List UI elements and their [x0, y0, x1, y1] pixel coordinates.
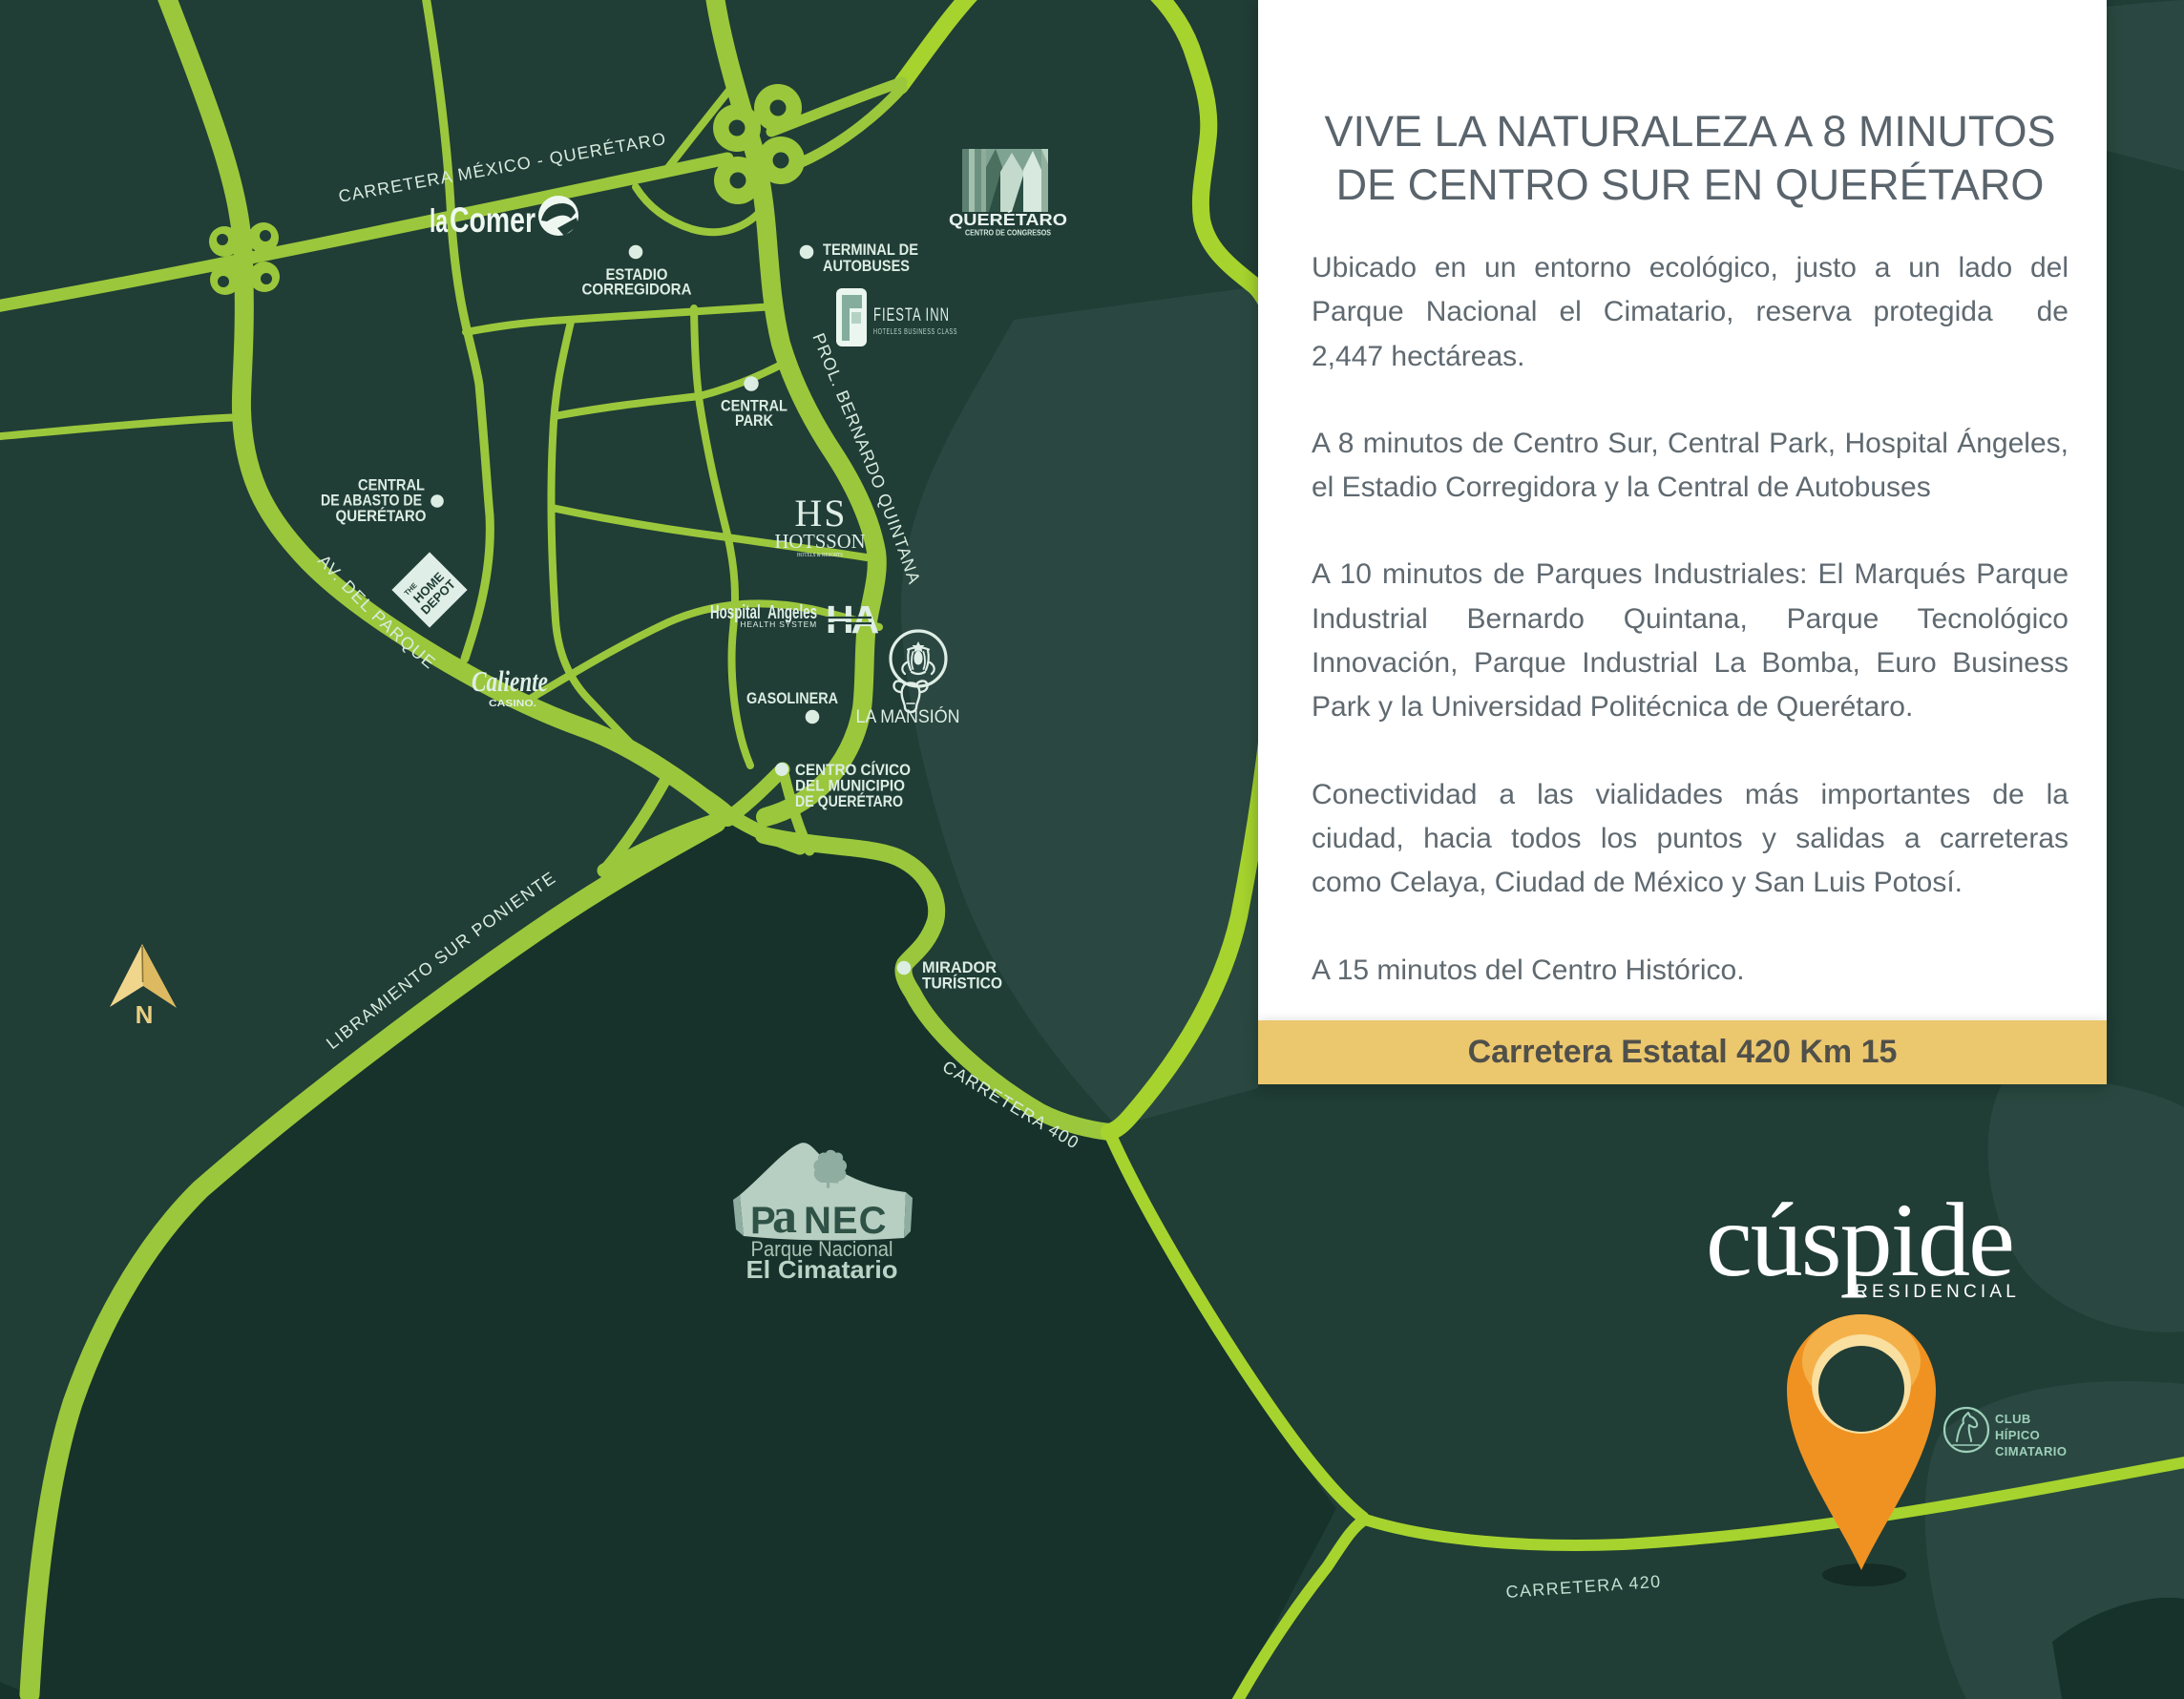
svg-text:HA: HA: [826, 598, 879, 641]
svg-text:a: a: [772, 1189, 797, 1244]
svg-text:PARK: PARK: [735, 411, 774, 430]
svg-text:CORREGIDORA: CORREGIDORA: [582, 281, 692, 299]
svg-text:CLUB: CLUB: [1995, 1412, 2031, 1426]
svg-text:QUERÉTARO: QUERÉTARO: [336, 507, 427, 525]
svg-text:RESIDENCIAL: RESIDENCIAL: [1855, 1282, 2020, 1302]
svg-text:la: la: [430, 203, 449, 240]
svg-text:AUTOBUSES: AUTOBUSES: [823, 257, 910, 275]
svg-text:CASINO.: CASINO.: [489, 698, 536, 709]
svg-text:N: N: [136, 1000, 154, 1029]
svg-text:HÍPICO: HÍPICO: [1995, 1428, 2040, 1442]
svg-text:LA MANSIÓN: LA MANSIÓN: [856, 706, 960, 727]
svg-text:FIESTA INN: FIESTA INN: [873, 305, 950, 325]
svg-text:HS: HS: [794, 492, 847, 535]
svg-text:DE QUERÉTARO: DE QUERÉTARO: [795, 792, 903, 810]
svg-text:HOTELS & RESORTS: HOTELS & RESORTS: [797, 552, 843, 558]
svg-text:HEALTH SYSTEM: HEALTH SYSTEM: [740, 619, 817, 629]
svg-text:GASOLINERA: GASOLINERA: [746, 689, 838, 707]
svg-text:cúspide: cúspide: [1706, 1182, 2013, 1298]
svg-text:HOTSSON: HOTSSON: [775, 530, 866, 553]
svg-text:CENTRO DE CONGRESOS: CENTRO DE CONGRESOS: [965, 229, 1052, 238]
svg-text:CIMATARIO: CIMATARIO: [1995, 1444, 2067, 1458]
svg-text:NEC: NEC: [804, 1200, 887, 1242]
svg-text:El Cimatario: El Cimatario: [746, 1255, 898, 1284]
svg-text:Caliente: Caliente: [472, 664, 548, 698]
svg-text:HOTELES BUSINESS CLASS: HOTELES BUSINESS CLASS: [873, 327, 957, 336]
svg-text:Comer: Comer: [450, 200, 535, 240]
svg-text:QUERÉTARO: QUERÉTARO: [949, 209, 1067, 229]
svg-text:TURÍSTICO: TURÍSTICO: [922, 975, 1002, 993]
